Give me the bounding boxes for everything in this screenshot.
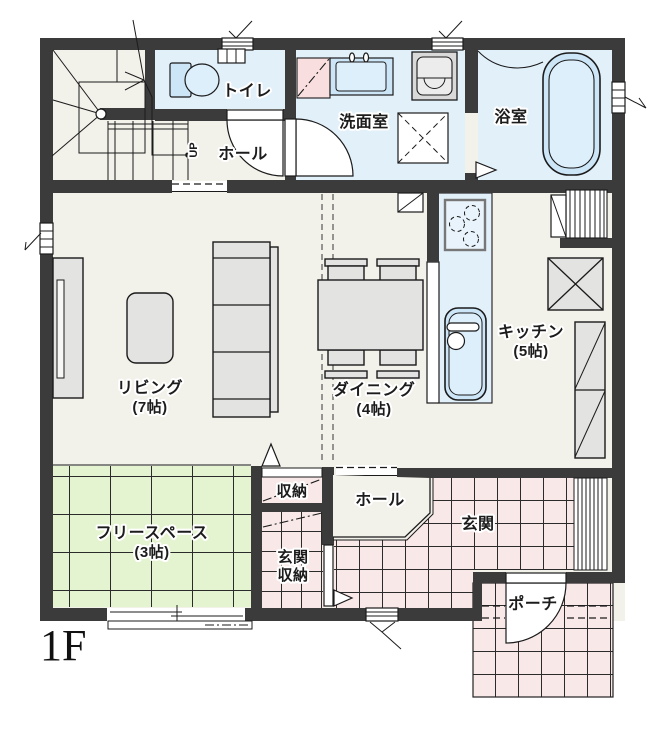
pantry-shelf [551,190,607,238]
kitchen-column [398,193,423,212]
floor-indicator: 1F [40,621,86,670]
washer-pan [398,113,448,163]
hall-upper-label: ホール [218,145,268,163]
cupboard [575,322,605,458]
bath-label: 浴室 [494,107,527,126]
living-label: リビング [117,378,183,397]
kitchen-sink-icon [445,308,486,400]
entrance-storage-label-1: 玄関 [277,548,308,566]
window-entrance-bottom [366,608,401,649]
window-toilet-top [222,21,253,50]
sofa [213,242,278,417]
kitchen-label: キッチン [498,324,564,341]
refrigerator-space [548,258,603,310]
stairs-up-label: UP [188,142,200,157]
living-table [127,293,173,363]
free-space-label: フリースペース [96,525,209,542]
dining-table [318,280,423,350]
porch-label: ポーチ [508,594,558,613]
stove-icon [445,200,485,250]
window-freespace-bottom [107,605,252,629]
floor-plan-canvas: トイレ 洗面室 浴室 ホール UP リビング (7帖) ダイニング (4帖) キ… [0,0,667,736]
dining-size-label: (4帖) [356,400,391,418]
entrance-label: 玄関 [461,514,494,533]
dining-label: ダイニング [333,380,416,399]
tv-board [53,258,83,398]
toilet-label: トイレ [222,83,272,100]
vanity-unit [297,53,393,98]
floor-plan-1f: トイレ 洗面室 浴室 ホール UP リビング (7帖) ダイニング (4帖) キ… [0,0,667,736]
opening-living-hall-lower [336,465,397,476]
hall-lower-label: ホール [355,491,405,509]
living-size-label: (7帖) [132,398,167,416]
washing-machine-icon [412,52,457,100]
washroom-label: 洗面室 [339,112,389,131]
opening-hall-living [172,181,227,192]
entrance-storage-label-2: 収納 [277,566,308,584]
kitchen-size-label: (5帖) [513,342,548,360]
window-washroom-top [432,21,463,50]
window-bath-right [612,82,646,113]
shoe-shelf [574,478,607,570]
window-living-left [25,223,53,254]
free-space-size-label: (3帖) [134,543,169,561]
storage-label: 収納 [276,482,307,500]
